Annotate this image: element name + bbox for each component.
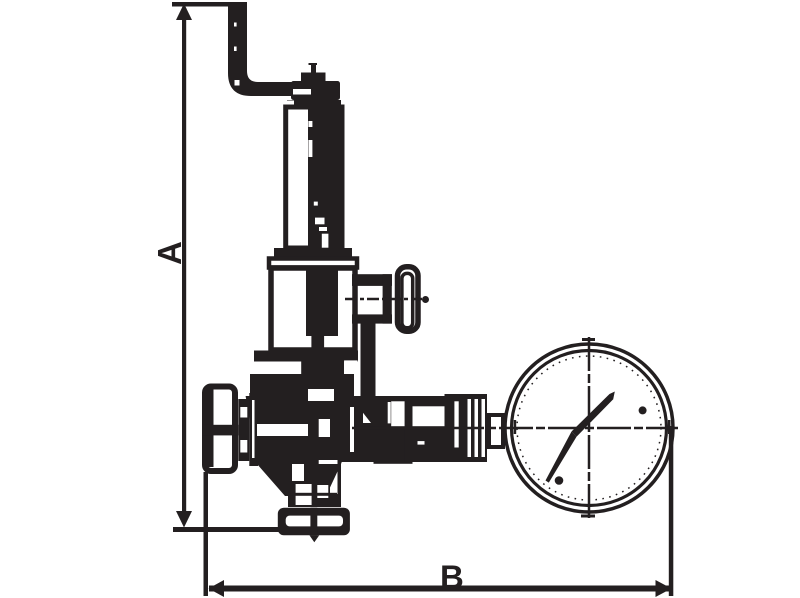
svg-text:A: A [151, 241, 188, 265]
svg-text:B: B [440, 559, 464, 596]
